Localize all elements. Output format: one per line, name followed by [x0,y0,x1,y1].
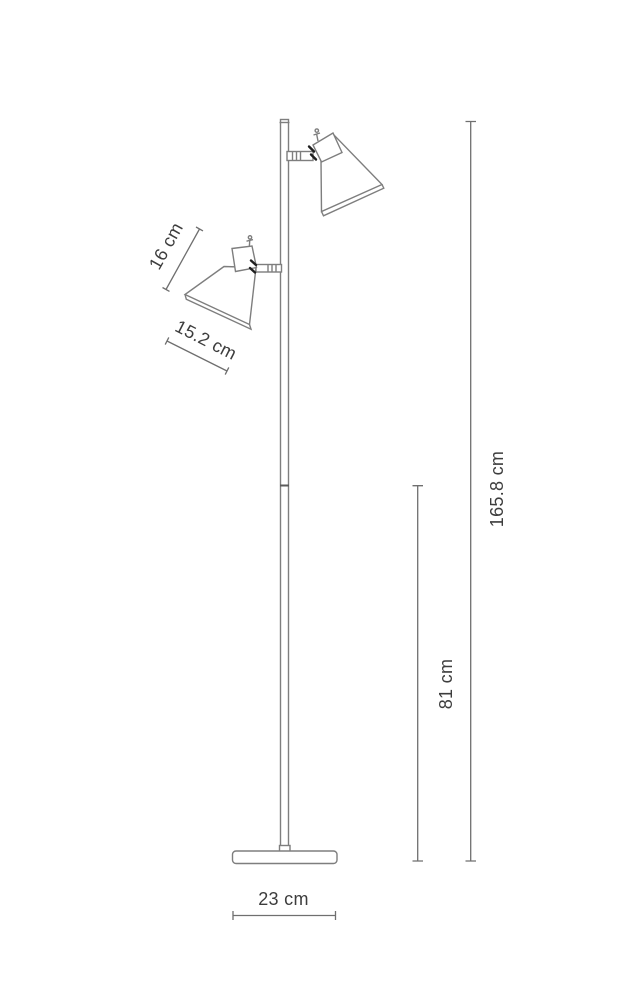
floor-lamp-line-drawing [0,0,633,992]
lower-lamp-head [185,236,282,330]
upper-adjust-knob [314,129,321,141]
lower-arm [256,265,282,273]
dimension-line-base-width [233,911,336,920]
lamp-pole [280,120,290,852]
dimension-label-total-height: 165.8 cm [488,451,506,527]
lower-socket-housing [232,246,257,272]
lamp-dimension-diagram: 16 cm 15.2 cm 165.8 cm 81 cm 23 cm [0,0,633,992]
lamp-base [233,846,338,864]
dimension-line-pole-to-floor [413,486,424,861]
dimension-label-pole-to-floor: 81 cm [437,659,455,710]
dimension-line-total-height [466,122,477,862]
upper-lamp-head [287,129,384,216]
dimension-label-base-width: 23 cm [258,890,309,908]
